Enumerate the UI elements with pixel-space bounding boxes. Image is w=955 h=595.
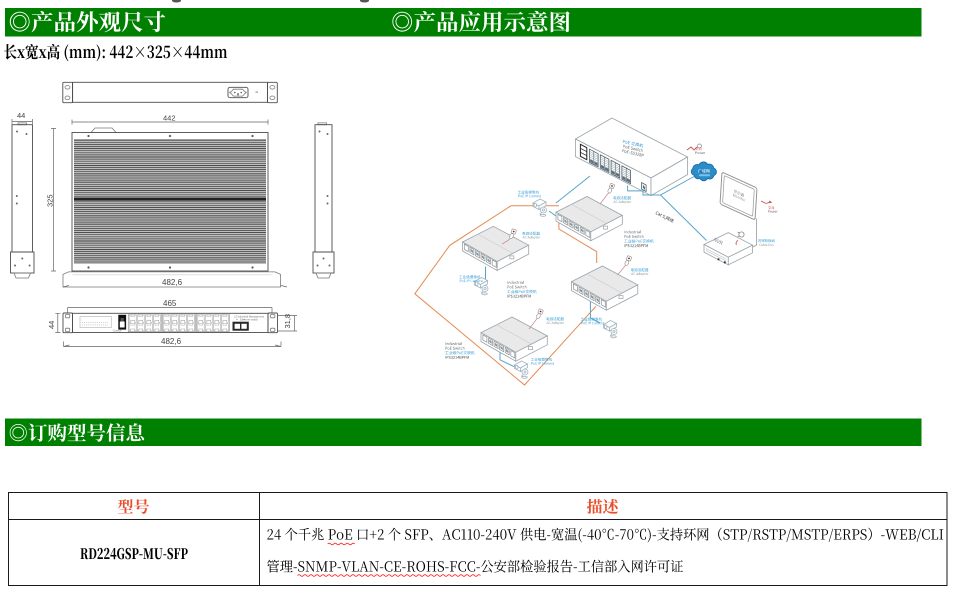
- svg-text:465: 465: [163, 299, 177, 308]
- svg-text:Console: Console: [113, 330, 122, 333]
- svg-text:Ethernet switch: Ethernet switch: [240, 318, 258, 322]
- svg-text:44: 44: [47, 321, 56, 329]
- svg-text:482,6: 482,6: [162, 278, 183, 287]
- svg-text:325: 325: [46, 194, 55, 207]
- svg-text:31,8: 31,8: [283, 314, 292, 329]
- svg-text:442: 442: [163, 114, 176, 123]
- svg-text:482,6: 482,6: [161, 337, 182, 346]
- svg-text:44: 44: [17, 111, 25, 120]
